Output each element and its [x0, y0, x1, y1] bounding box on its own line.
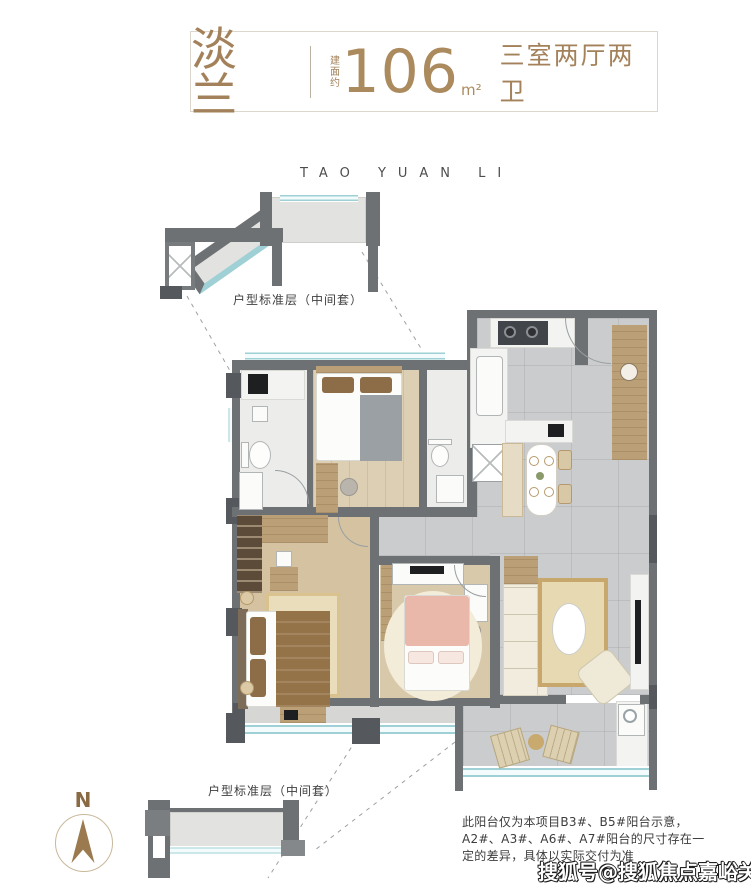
wall — [370, 517, 379, 707]
wall — [233, 703, 245, 743]
wall — [490, 556, 500, 708]
toilet — [431, 445, 449, 467]
blanket — [405, 596, 469, 646]
entry-cabinet — [612, 325, 647, 460]
elevator-shaft — [165, 242, 195, 290]
pillow — [408, 651, 434, 664]
nightstand — [240, 591, 254, 605]
cooktop — [548, 424, 564, 437]
desk-chair — [276, 551, 292, 567]
desk — [316, 463, 338, 513]
north-compass: N — [54, 788, 112, 874]
wall — [145, 810, 173, 836]
balcony-window — [463, 766, 649, 779]
keyplan-window — [280, 194, 358, 202]
vase-icon — [620, 363, 638, 381]
disclaimer-line: A2#、A3#、A6#、A7#阳台的尺寸存在一 — [462, 831, 724, 848]
dresser — [262, 515, 328, 543]
tv — [635, 600, 641, 664]
dining-chair — [558, 484, 572, 504]
wall — [272, 242, 282, 286]
burner-icon — [504, 326, 516, 338]
wall — [281, 840, 305, 856]
kitchen-sink — [476, 356, 503, 416]
wall — [455, 703, 463, 791]
floor-plan — [232, 303, 658, 800]
key-plan-top — [160, 188, 395, 306]
pillow — [438, 651, 464, 664]
room-layout: 三室两厅两卫 — [500, 36, 657, 108]
burner-icon — [526, 326, 538, 338]
dining-chair — [558, 450, 572, 470]
project-name: TAO YUAN LI — [300, 166, 560, 181]
tv — [410, 566, 444, 574]
wall — [467, 310, 657, 318]
wardrobe — [237, 515, 262, 593]
bed2-headboard — [316, 366, 402, 373]
keyplan-bar — [170, 812, 285, 850]
balcony-window — [245, 723, 455, 736]
place-setting — [529, 456, 539, 466]
area-unit: m² — [461, 81, 482, 99]
pillow — [250, 617, 266, 655]
toilet — [249, 441, 271, 469]
dining-table — [526, 444, 557, 516]
wall — [352, 718, 380, 744]
area-value: 106 — [341, 42, 459, 102]
keyplan-bar — [270, 197, 366, 243]
wall — [165, 228, 283, 242]
place-setting — [544, 456, 554, 466]
key-plan-bottom-label: 户型标准层（中间套） — [208, 782, 338, 799]
disclaimer-line: 此阳台仅为本项目B3#、B5#阳台示意， — [462, 814, 724, 831]
desk — [270, 567, 298, 591]
place-setting — [529, 487, 539, 497]
blanket — [360, 395, 402, 461]
wall-cabinet — [252, 406, 268, 422]
laundry-decor — [248, 374, 268, 394]
place-setting — [544, 487, 554, 497]
keyplan-window — [170, 846, 282, 855]
bath2-vanity — [436, 475, 464, 503]
balcony-decor — [284, 710, 298, 720]
sofa — [503, 584, 538, 696]
area-label: 建面约 — [327, 55, 339, 88]
nightstand — [240, 681, 254, 695]
washer-drum-icon — [623, 709, 637, 723]
wall — [495, 695, 566, 704]
unit-header: 淡兰 建面约 106 m² 三室两厅两卫 — [190, 31, 658, 112]
toilet-tank — [241, 442, 249, 468]
key-plan-bottom — [145, 798, 313, 880]
wall — [366, 192, 380, 246]
wall — [226, 373, 242, 398]
watermark: 搜狐号@搜狐焦点嘉峪关站 — [538, 856, 751, 885]
table-decor — [536, 472, 544, 480]
wall — [368, 246, 378, 292]
bath1-vanity — [239, 472, 263, 510]
wall — [649, 515, 657, 563]
dining-bench — [502, 443, 523, 517]
coffee-table — [552, 603, 586, 655]
wall — [283, 800, 299, 844]
wall — [649, 685, 657, 709]
sofa-console — [504, 556, 538, 584]
balcony-table — [528, 734, 544, 750]
north-label: N — [54, 788, 112, 812]
wall — [419, 370, 427, 517]
wall — [640, 695, 649, 704]
wall — [160, 286, 182, 299]
corridor-floor — [378, 517, 490, 556]
desk-chair — [340, 478, 358, 496]
blanket — [276, 611, 330, 707]
pillow — [360, 377, 392, 393]
unit-name: 淡兰 — [191, 26, 294, 118]
header-divider — [310, 46, 311, 98]
pillow — [322, 377, 354, 393]
